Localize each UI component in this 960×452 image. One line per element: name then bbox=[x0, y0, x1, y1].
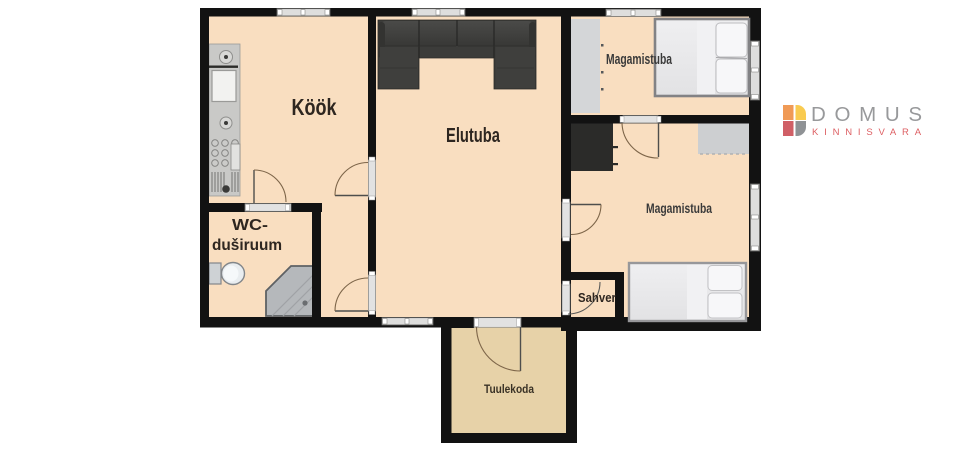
svg-text:Tuulekoda: Tuulekoda bbox=[484, 382, 534, 396]
svg-text:KINNISVARA: KINNISVARA bbox=[812, 127, 927, 138]
svg-text:WC-: WC- bbox=[232, 217, 268, 234]
svg-text:Sahver: Sahver bbox=[578, 290, 616, 305]
svg-text:Köök: Köök bbox=[292, 94, 337, 120]
svg-text:Elutuba: Elutuba bbox=[446, 125, 501, 147]
svg-text:Magamistuba: Magamistuba bbox=[646, 201, 712, 216]
svg-text:DOMUS: DOMUS bbox=[811, 103, 931, 126]
svg-text:Magamistuba: Magamistuba bbox=[606, 52, 673, 68]
svg-text:duširuum: duširuum bbox=[212, 237, 282, 254]
